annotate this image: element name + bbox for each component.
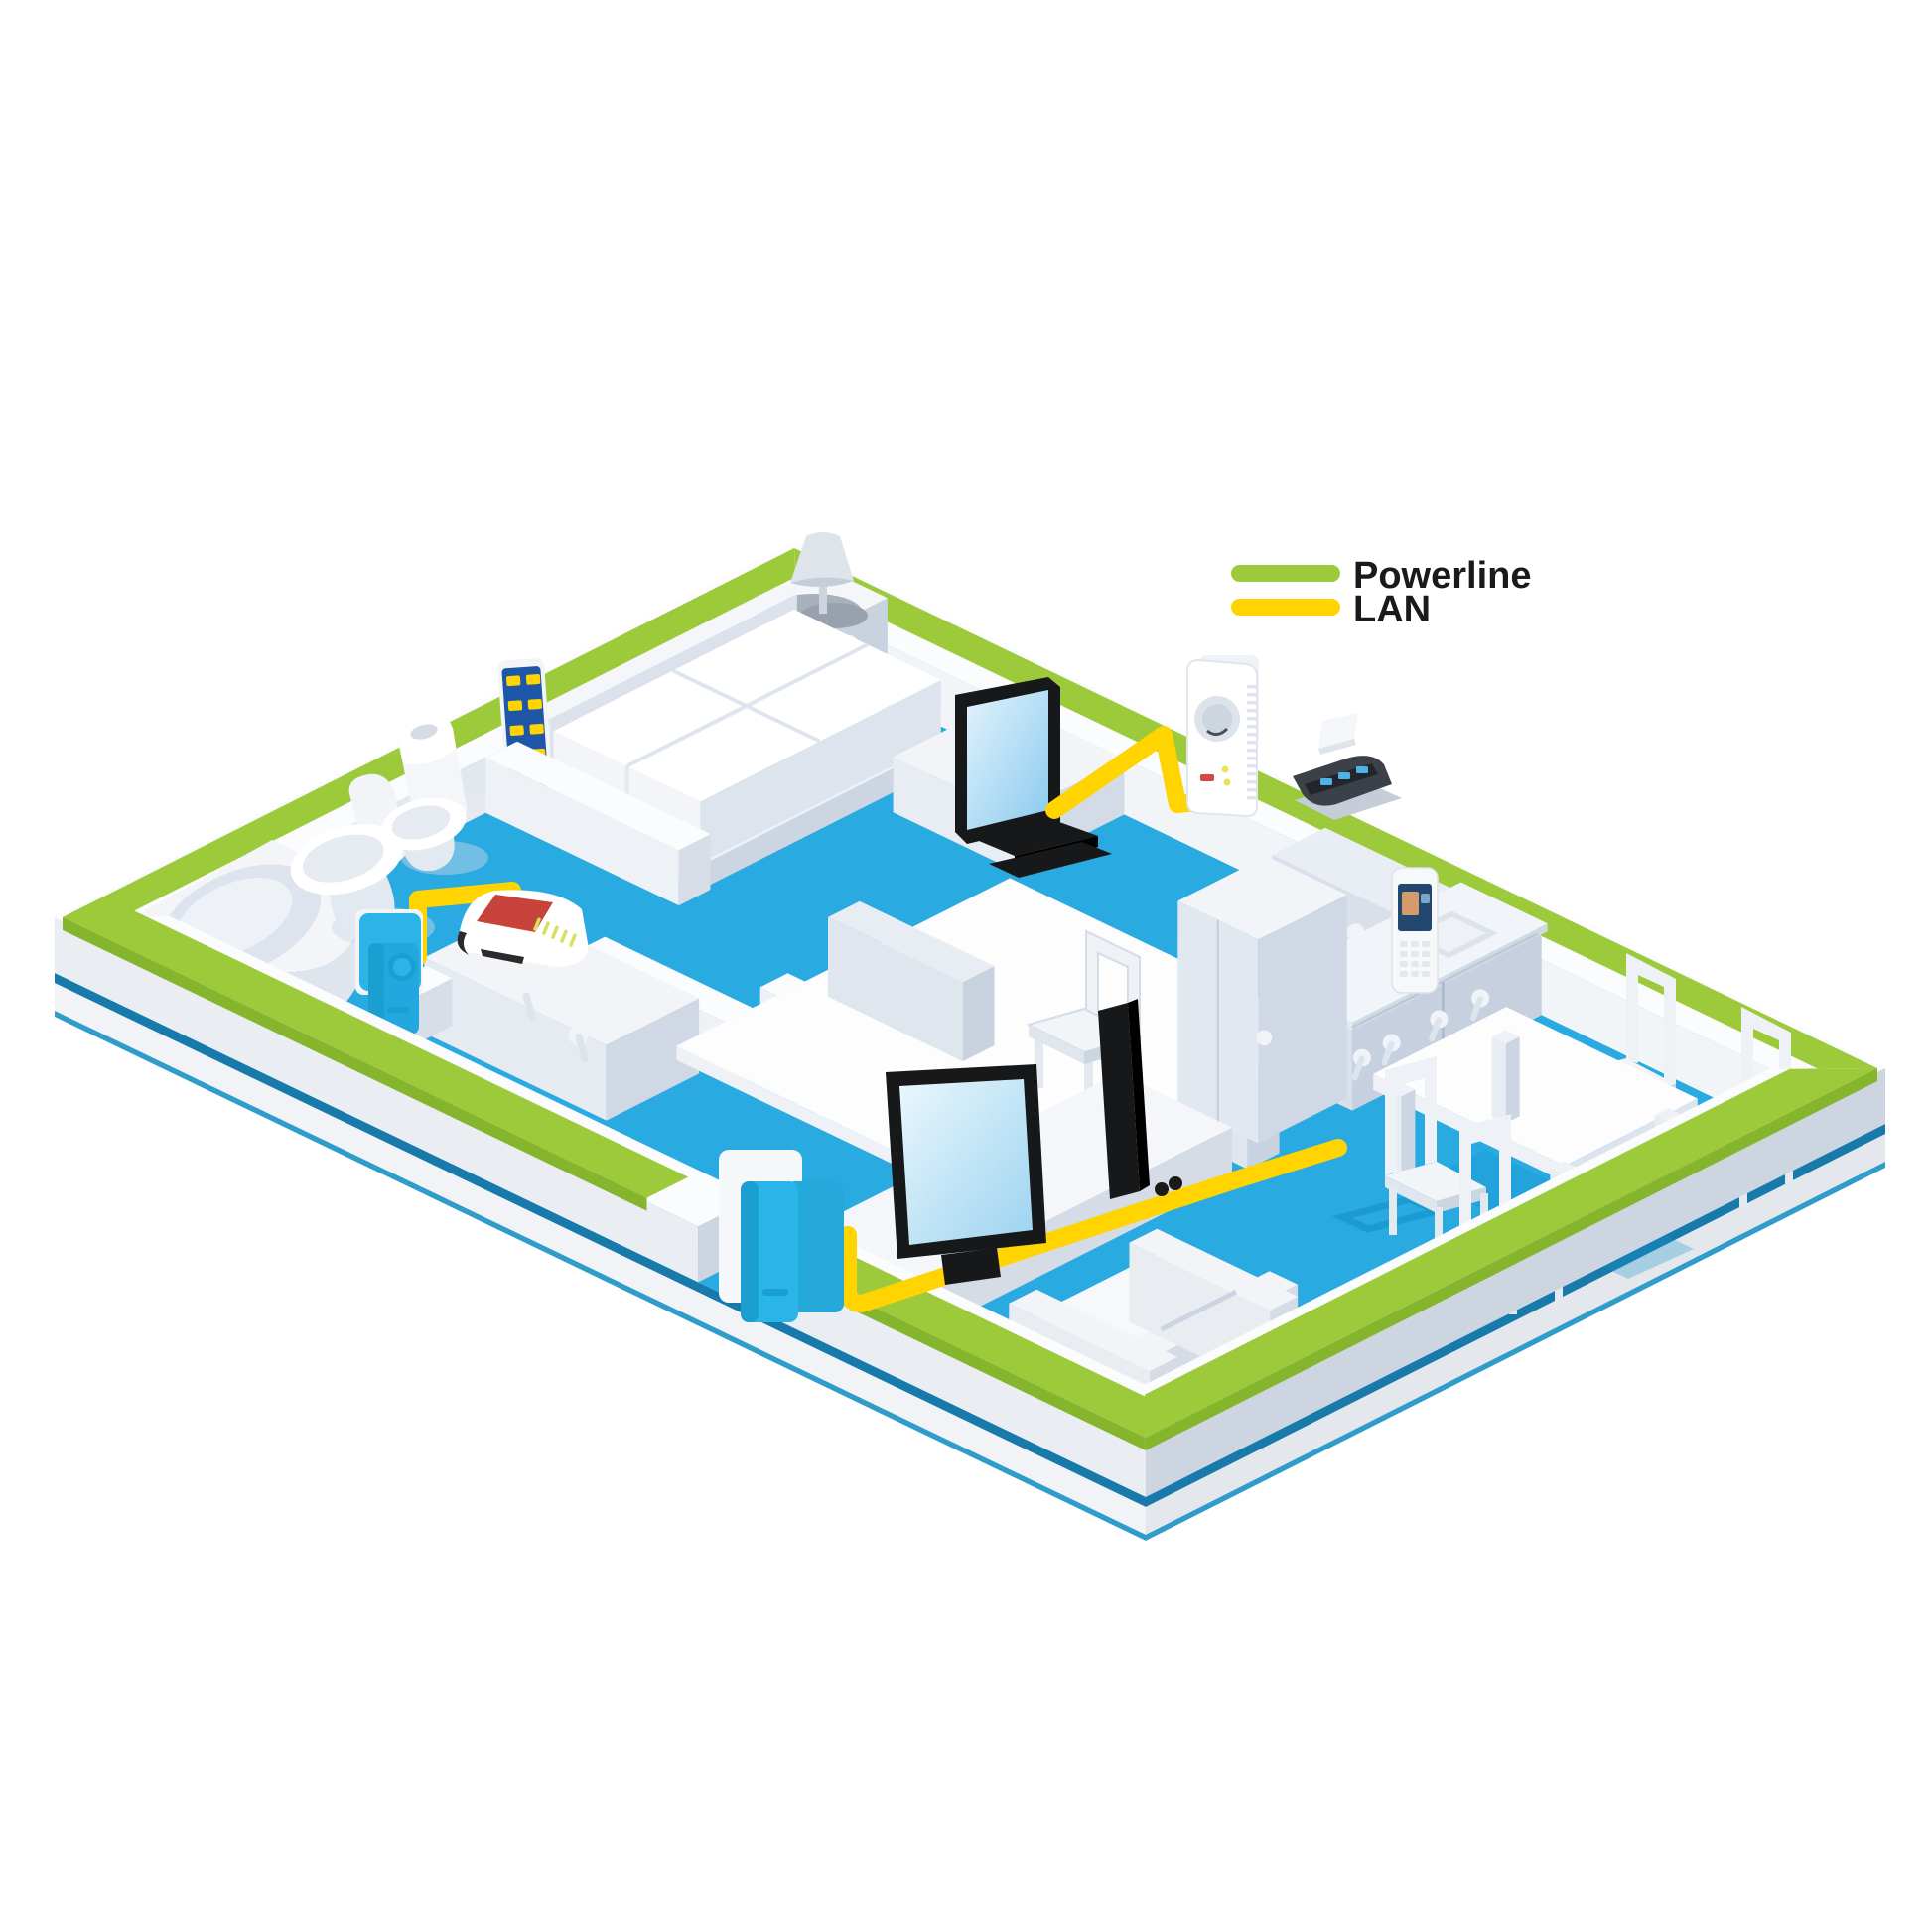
svg-text:LAN: LAN (1353, 589, 1431, 630)
